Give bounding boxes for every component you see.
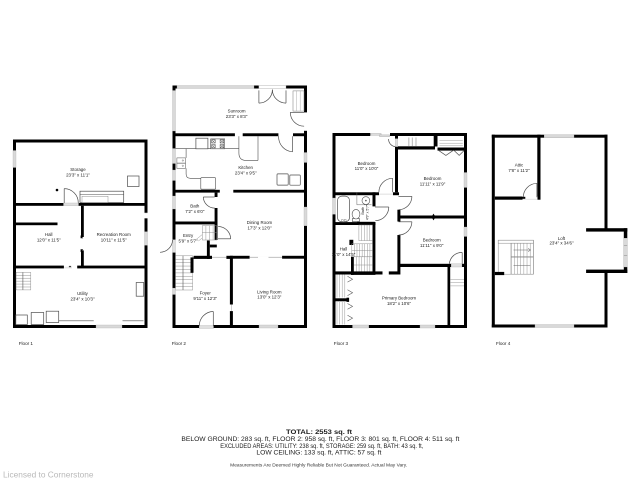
svg-text:7'2" x 6'0": 7'2" x 6'0" bbox=[185, 209, 205, 214]
svg-text:Hall: Hall bbox=[45, 232, 53, 237]
svg-text:Licensed to Cornerstone: Licensed to Cornerstone bbox=[3, 470, 94, 480]
svg-text:Measurements Are Deemed Highly: Measurements Are Deemed Highly Reliable … bbox=[230, 463, 407, 468]
svg-text:Bedroom: Bedroom bbox=[423, 237, 441, 242]
svg-text:Floor 1: Floor 1 bbox=[19, 341, 34, 346]
svg-text:Bath: Bath bbox=[190, 204, 200, 209]
svg-text:Floor 4: Floor 4 bbox=[496, 341, 511, 346]
svg-text:Floor 2: Floor 2 bbox=[172, 341, 187, 346]
svg-text:Foyer: Foyer bbox=[200, 291, 212, 296]
svg-text:11'0" x 10'0": 11'0" x 10'0" bbox=[355, 166, 379, 171]
svg-text:Kitchen: Kitchen bbox=[238, 165, 253, 170]
svg-text:Living Room: Living Room bbox=[257, 289, 282, 294]
svg-text:13'0" x 12'3": 13'0" x 12'3" bbox=[257, 295, 282, 300]
svg-text:Primary Bedroom: Primary Bedroom bbox=[382, 296, 417, 301]
svg-text:11'11" x 9'0": 11'11" x 9'0" bbox=[420, 243, 444, 248]
svg-text:10'11" x 11'5": 10'11" x 11'5" bbox=[101, 237, 127, 242]
svg-text:11'11" x 11'9": 11'11" x 11'9" bbox=[420, 181, 446, 186]
svg-text:23'3" x 11'1": 23'3" x 11'1" bbox=[66, 172, 90, 177]
svg-text:5'9" x 5'7": 5'9" x 5'7" bbox=[178, 238, 198, 243]
svg-text:23'3" x 8'3": 23'3" x 8'3" bbox=[226, 114, 248, 119]
svg-text:Dining Room: Dining Room bbox=[247, 220, 273, 225]
svg-text:TOTAL: 2553 sq. ft: TOTAL: 2553 sq. ft bbox=[286, 429, 353, 436]
svg-text:9'11" x 12'3": 9'11" x 12'3" bbox=[193, 296, 217, 301]
svg-text:Hall: Hall bbox=[340, 247, 348, 252]
svg-text:11'0" x 14'5": 11'0" x 14'5" bbox=[332, 252, 356, 257]
svg-text:Storage: Storage bbox=[70, 167, 86, 172]
svg-text:Attic: Attic bbox=[515, 163, 524, 168]
svg-text:Recreation Room: Recreation Room bbox=[97, 232, 132, 237]
svg-text:4'9" x 5'7": 4'9" x 5'7" bbox=[366, 204, 370, 220]
svg-text:17'3" x 12'0": 17'3" x 12'0" bbox=[247, 225, 272, 230]
svg-text:Entry: Entry bbox=[183, 233, 194, 238]
svg-text:Bedroom: Bedroom bbox=[358, 161, 376, 166]
svg-text:LOW CEILING: 133 sq. ft, ATTIC: LOW CEILING: 133 sq. ft, ATTIC: 57 sq. f… bbox=[256, 449, 381, 456]
svg-text:23'4" x 9'5": 23'4" x 9'5" bbox=[235, 170, 257, 175]
svg-text:23'4" x 10'3": 23'4" x 10'3" bbox=[70, 296, 95, 301]
svg-text:Sunroom: Sunroom bbox=[228, 109, 246, 114]
svg-text:12'0" x 11'5": 12'0" x 11'5" bbox=[37, 237, 61, 242]
svg-text:23'4" x 34'6": 23'4" x 34'6" bbox=[549, 241, 574, 246]
svg-text:7'8" x 11'2": 7'8" x 11'2" bbox=[508, 168, 530, 173]
svg-text:18'2" x 10'6": 18'2" x 10'6" bbox=[387, 301, 412, 306]
svg-text:Floor 3: Floor 3 bbox=[334, 341, 349, 346]
svg-text:Bedroom: Bedroom bbox=[424, 176, 442, 181]
svg-text:Utility: Utility bbox=[77, 291, 89, 296]
svg-text:Bath: Bath bbox=[360, 207, 365, 215]
